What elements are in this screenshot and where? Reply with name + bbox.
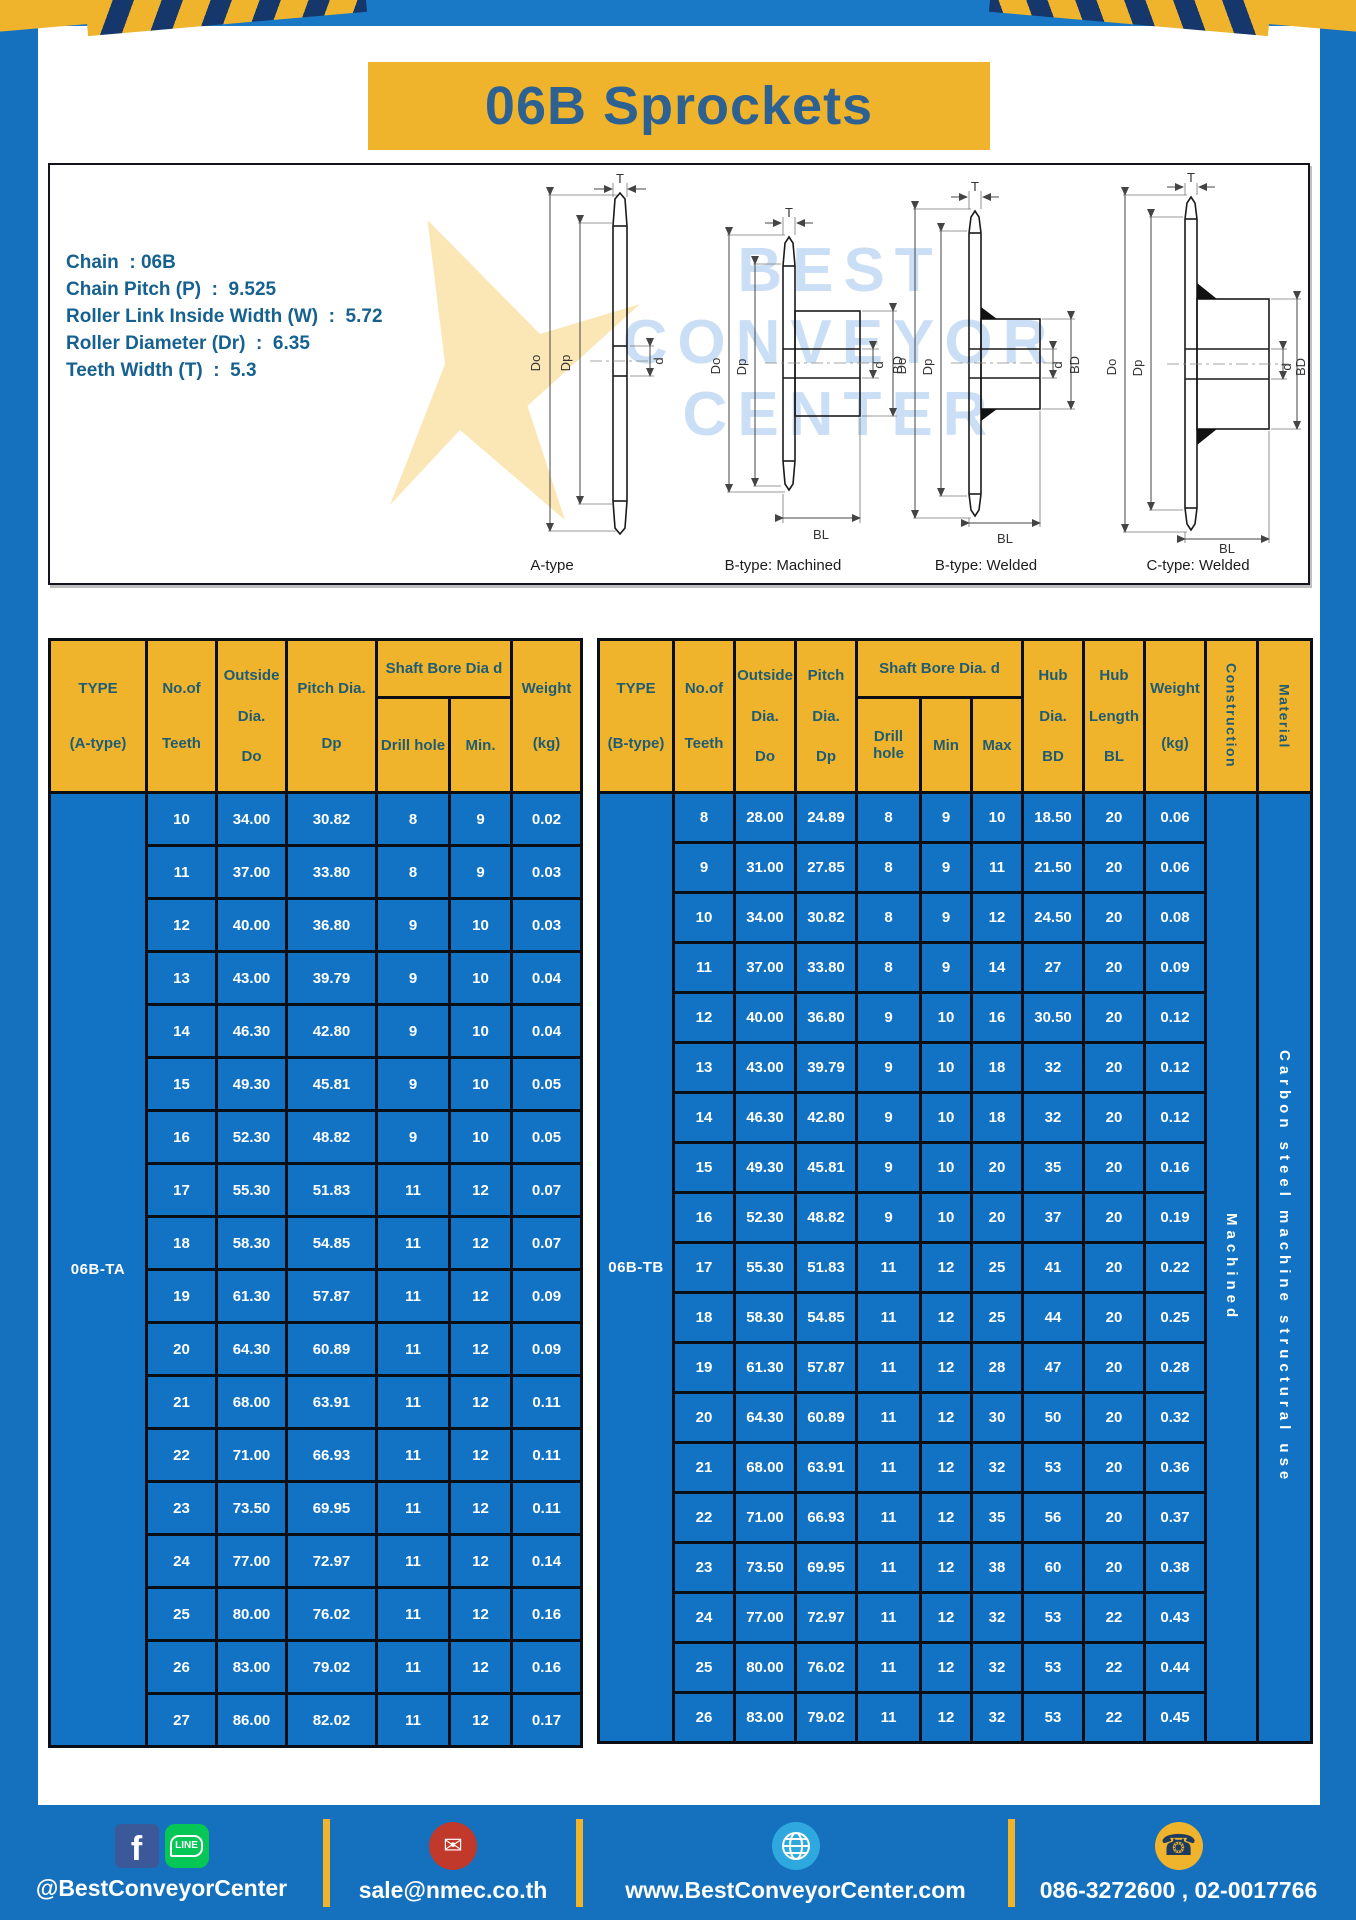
table-row: 1961.3057.8711122847200.28 [599, 1343, 1312, 1393]
footer-divider [323, 1819, 330, 1907]
table-cell: 9 [921, 843, 972, 893]
table-cell: 12 [921, 1393, 972, 1443]
table-row: 06B-TB828.0024.89891018.50200.06Machined… [599, 793, 1312, 843]
table-cell: 0.11 [512, 1429, 582, 1482]
table-row: 1652.3048.829102037200.19 [599, 1193, 1312, 1243]
table-cell: 54.85 [287, 1217, 377, 1270]
footer-email: ✉ sale@nmec.co.th [330, 1805, 576, 1920]
table-cell: 28 [972, 1343, 1023, 1393]
table-cell: 11 [147, 846, 217, 899]
table-cell: 20 [1084, 943, 1145, 993]
dim-label-bd: BD [1067, 356, 1080, 374]
table-cell: 61.30 [217, 1270, 287, 1323]
col-header-weight: Weight(kg) [1145, 640, 1206, 793]
table-cell: 80.00 [217, 1588, 287, 1641]
table-cell: 9 [857, 1043, 921, 1093]
table-cell: 36.80 [796, 993, 857, 1043]
table-cell: 33.80 [287, 846, 377, 899]
table-cell: 0.14 [512, 1535, 582, 1588]
spec-list: Chain : 06B Chain Pitch (P) : 9.525 Roll… [66, 249, 383, 384]
table-cell: 22 [1084, 1593, 1145, 1643]
table-cell: 8 [857, 793, 921, 843]
table-row: 1137.0033.80891427200.09 [599, 943, 1312, 993]
table-cell: 12 [921, 1293, 972, 1343]
table-cell: 9 [921, 793, 972, 843]
table-row: 2064.3060.8911123050200.32 [599, 1393, 1312, 1443]
globe-icon [772, 1822, 820, 1870]
table-cell: 12 [921, 1343, 972, 1393]
table-cell: 14 [147, 1005, 217, 1058]
table-cell: 24 [674, 1593, 735, 1643]
table-cell: 14 [674, 1093, 735, 1143]
footer-divider [1008, 1819, 1015, 1907]
table-cell: 12 [450, 1482, 512, 1535]
table-cell: 9 [377, 1111, 450, 1164]
col-header-pitch-dia: PitchDia.Dp [796, 640, 857, 793]
spec-chain-pitch: Chain Pitch (P) : 9.525 [66, 276, 383, 303]
table-cell: 12 [450, 1429, 512, 1482]
table-cell: 32 [972, 1593, 1023, 1643]
page-title-box: 06B Sprockets [368, 62, 990, 150]
table-cell: 10 [450, 952, 512, 1005]
type-label-cell: 06B-TA [50, 793, 147, 1747]
dim-label-d: d [1279, 363, 1294, 370]
table-b-type: TYPE(B-type) No.ofTeeth OutsideDia.Do Pi… [597, 638, 1313, 1744]
table-cell: 13 [674, 1043, 735, 1093]
table-cell: 25 [147, 1588, 217, 1641]
table-cell: 22 [1084, 1643, 1145, 1693]
table-cell: 33.80 [796, 943, 857, 993]
table-cell: 34.00 [735, 893, 796, 943]
table-cell: 0.04 [512, 1005, 582, 1058]
table-cell: 11 [377, 1641, 450, 1694]
table-cell: 25 [972, 1243, 1023, 1293]
table-cell: 0.04 [512, 952, 582, 1005]
table-cell: 11 [377, 1217, 450, 1270]
table-cell: 32 [1023, 1093, 1084, 1143]
table-cell: 0.03 [512, 899, 582, 952]
table-cell: 42.80 [287, 1005, 377, 1058]
table-cell: 23 [147, 1482, 217, 1535]
table-cell: 20 [147, 1323, 217, 1376]
table-cell: 0.07 [512, 1164, 582, 1217]
table-cell: 12 [921, 1243, 972, 1293]
table-cell: 9 [377, 899, 450, 952]
table-row: 1858.3054.8511122544200.25 [599, 1293, 1312, 1343]
table-cell: 20 [1084, 1343, 1145, 1393]
table-cell: 0.05 [512, 1111, 582, 1164]
table-cell: 60.89 [796, 1393, 857, 1443]
table-cell: 32 [972, 1443, 1023, 1493]
table-cell: 73.50 [217, 1482, 287, 1535]
table-cell: 73.50 [735, 1543, 796, 1593]
table-cell: 12 [450, 1217, 512, 1270]
col-header-hub-dia: HubDia.BD [1023, 640, 1084, 793]
table-cell: 11 [377, 1482, 450, 1535]
table-cell: 32 [1023, 1043, 1084, 1093]
table-cell: 0.08 [1145, 893, 1206, 943]
table-cell: 22 [674, 1493, 735, 1543]
spec-chain: Chain : 06B [66, 249, 383, 276]
dim-label-t: T [785, 205, 793, 220]
table-cell: 20 [1084, 1543, 1145, 1593]
table-cell: 12 [450, 1641, 512, 1694]
table-cell: 45.81 [796, 1143, 857, 1193]
table-cell: 0.16 [512, 1588, 582, 1641]
dim-label-bl: BL [1219, 541, 1235, 556]
table-cell: 20 [1084, 793, 1145, 843]
table-cell: 0.36 [1145, 1443, 1206, 1493]
table-cell: 63.91 [287, 1376, 377, 1429]
table-cell: 83.00 [735, 1693, 796, 1743]
table-cell: 50 [1023, 1393, 1084, 1443]
table-cell: 48.82 [287, 1111, 377, 1164]
table-cell: 40.00 [217, 899, 287, 952]
table-row: 1446.3042.809101832200.12 [599, 1093, 1312, 1143]
table-cell: 22 [147, 1429, 217, 1482]
line-icon: LINE [165, 1824, 209, 1868]
table-cell: 9 [377, 952, 450, 1005]
table-cell: 10 [450, 1058, 512, 1111]
table-cell: 17 [147, 1164, 217, 1217]
table-cell: 20 [1084, 1293, 1145, 1343]
table-cell: 55.30 [217, 1164, 287, 1217]
col-header-shaft-bore: Shaft Bore Dia. d [857, 640, 1023, 698]
table-cell: 37 [1023, 1193, 1084, 1243]
table-cell: 60.89 [287, 1323, 377, 1376]
table-cell: 20 [1084, 1143, 1145, 1193]
table-cell: 16 [147, 1111, 217, 1164]
table-row: 2683.0079.0211123253220.45 [599, 1693, 1312, 1743]
table-cell: 35 [972, 1493, 1023, 1543]
table-cell: 82.02 [287, 1694, 377, 1747]
table-cell: 9 [450, 793, 512, 846]
hazard-stripes [989, 0, 1271, 36]
table-cell: 20 [1084, 1243, 1145, 1293]
table-cell: 64.30 [217, 1323, 287, 1376]
table-cell: 11 [377, 1323, 450, 1376]
table-cell: 21 [674, 1443, 735, 1493]
table-cell: 57.87 [796, 1343, 857, 1393]
table-cell: 18 [972, 1043, 1023, 1093]
dim-label-t: T [1187, 171, 1195, 185]
table-cell: 0.16 [1145, 1143, 1206, 1193]
drawing-a-type: T Do Dp d [490, 171, 675, 556]
col-header-construction: Construction [1206, 640, 1258, 793]
table-cell: 69.95 [796, 1543, 857, 1593]
table-cell: 54.85 [796, 1293, 857, 1343]
table-row: 06B-TA1034.0030.82890.02 [50, 793, 582, 846]
table-cell: 11 [377, 1164, 450, 1217]
table-cell: 86.00 [217, 1694, 287, 1747]
table-cell: 25 [674, 1643, 735, 1693]
table-cell: 37.00 [735, 943, 796, 993]
table-cell: 63.91 [796, 1443, 857, 1493]
table-row: 2373.5069.9511123860200.38 [599, 1543, 1312, 1593]
table-cell: 24.50 [1023, 893, 1084, 943]
table-cell: 10 [921, 1143, 972, 1193]
col-header-outside-dia: OutsideDia.Do [735, 640, 796, 793]
table-cell: 8 [674, 793, 735, 843]
table-cell: 52.30 [217, 1111, 287, 1164]
table-cell: 8 [377, 846, 450, 899]
table-cell: 18.50 [1023, 793, 1084, 843]
table-cell: 20 [972, 1193, 1023, 1243]
table-cell: 66.93 [796, 1493, 857, 1543]
table-cell: 79.02 [287, 1641, 377, 1694]
table-cell: 11 [377, 1270, 450, 1323]
drawing-label-c-welded: C-type: Welded [1146, 557, 1249, 574]
table-cell: 49.30 [735, 1143, 796, 1193]
table-cell: 9 [921, 893, 972, 943]
table-cell: 0.32 [1145, 1393, 1206, 1443]
table-cell: 0.43 [1145, 1593, 1206, 1643]
table-cell: 18 [674, 1293, 735, 1343]
table-cell: 77.00 [217, 1535, 287, 1588]
table-cell: 12 [921, 1593, 972, 1643]
table-cell: 12 [147, 899, 217, 952]
table-cell: 20 [1084, 1043, 1145, 1093]
table-cell: 8 [857, 893, 921, 943]
table-cell: 39.79 [796, 1043, 857, 1093]
table-cell: 10 [450, 1005, 512, 1058]
table-cell: 9 [857, 993, 921, 1043]
table-cell: 0.12 [1145, 1043, 1206, 1093]
table-cell: 46.30 [217, 1005, 287, 1058]
table-cell: 0.38 [1145, 1543, 1206, 1593]
table-cell: 10 [450, 899, 512, 952]
table-cell: 21 [147, 1376, 217, 1429]
dim-label-bl: BL [813, 527, 829, 542]
table-cell: 36.80 [287, 899, 377, 952]
table-cell: 0.02 [512, 793, 582, 846]
table-cell: 83.00 [217, 1641, 287, 1694]
dim-label-bd: BD [1293, 358, 1308, 376]
table-cell: 76.02 [287, 1588, 377, 1641]
table-cell: 12 [972, 893, 1023, 943]
table-cell: 13 [147, 952, 217, 1005]
table-cell: 19 [674, 1343, 735, 1393]
table-cell: 58.30 [217, 1217, 287, 1270]
table-cell: 11 [857, 1443, 921, 1493]
table-row: 1755.3051.8311122541200.22 [599, 1243, 1312, 1293]
table-cell: 11 [857, 1593, 921, 1643]
table-cell: 15 [674, 1143, 735, 1193]
table-cell: 60 [1023, 1543, 1084, 1593]
table-cell: 11 [857, 1293, 921, 1343]
table-cell: 10 [921, 1093, 972, 1143]
table-cell: 0.09 [512, 1323, 582, 1376]
spec-teeth-width: Teeth Width (T) : 5.3 [66, 357, 383, 384]
dim-label-dp: Dp [558, 355, 573, 372]
table-cell: 12 [450, 1535, 512, 1588]
col-header-shaft-bore: Shaft Bore Dia d [377, 640, 512, 698]
dim-label-d: d [1050, 361, 1065, 368]
table-cell: 21.50 [1023, 843, 1084, 893]
table-cell: 0.12 [1145, 993, 1206, 1043]
table-cell: 57.87 [287, 1270, 377, 1323]
table-cell: 20 [1084, 1393, 1145, 1443]
table-cell: 16 [674, 1193, 735, 1243]
table-cell: 30.82 [287, 793, 377, 846]
facebook-icon: f [115, 1824, 159, 1868]
table-cell: 11 [857, 1643, 921, 1693]
table-cell: 24 [147, 1535, 217, 1588]
table-cell: 20 [1084, 1093, 1145, 1143]
table-cell: 39.79 [287, 952, 377, 1005]
dim-label-do: Do [1104, 359, 1119, 376]
table-cell: 12 [450, 1694, 512, 1747]
table-cell: 0.17 [512, 1694, 582, 1747]
table-cell: 18 [147, 1217, 217, 1270]
table-cell: 43.00 [735, 1043, 796, 1093]
table-cell: 11 [674, 943, 735, 993]
table-cell: 0.37 [1145, 1493, 1206, 1543]
table-row: 2477.0072.9711123253220.43 [599, 1593, 1312, 1643]
table-cell: 9 [377, 1005, 450, 1058]
table-cell: 42.80 [796, 1093, 857, 1143]
table-cell: 0.07 [512, 1217, 582, 1270]
footer-phone: ☎ 086-3272600 , 02-0017766 [1015, 1805, 1342, 1920]
table-cell: 11 [857, 1493, 921, 1543]
table-cell: 18 [972, 1093, 1023, 1143]
corner-stripes-right [986, 0, 1356, 56]
table-cell: 20 [1084, 1193, 1145, 1243]
table-cell: 11 [857, 1693, 921, 1743]
table-cell: 11 [857, 1343, 921, 1393]
dim-label-dp: Dp [734, 359, 749, 376]
table-cell: 12 [674, 993, 735, 1043]
table-cell: 23 [674, 1543, 735, 1593]
drawing-label-b-welded: B-type: Welded [935, 557, 1037, 574]
table-cell: 0.45 [1145, 1693, 1206, 1743]
table-cell: 27 [147, 1694, 217, 1747]
spec-roller-diameter: Roller Diameter (Dr) : 6.35 [66, 330, 383, 357]
table-cell: 31.00 [735, 843, 796, 893]
table-cell: 12 [450, 1588, 512, 1641]
col-header-teeth: No.ofTeeth [147, 640, 217, 793]
table-cell: 11 [857, 1393, 921, 1443]
table-cell: 12 [450, 1164, 512, 1217]
col-header-teeth: No.ofTeeth [674, 640, 735, 793]
table-cell: 27.85 [796, 843, 857, 893]
dim-label-bl: BL [997, 531, 1013, 546]
table-cell: 12 [921, 1643, 972, 1693]
col-header-max: Max [972, 698, 1023, 793]
email-address: sale@nmec.co.th [359, 1877, 548, 1904]
table-cell: 11 [972, 843, 1023, 893]
table-cell: 9 [674, 843, 735, 893]
table-cell: 48.82 [796, 1193, 857, 1243]
table-cell: 32 [972, 1643, 1023, 1693]
table-cell: 49.30 [217, 1058, 287, 1111]
table-row: 2271.0066.9311123556200.37 [599, 1493, 1312, 1543]
table-row: 2168.0063.9111123253200.36 [599, 1443, 1312, 1493]
table-cell: 22 [1084, 1693, 1145, 1743]
table-cell: 56 [1023, 1493, 1084, 1543]
table-cell: 28.00 [735, 793, 796, 843]
table-cell: 44 [1023, 1293, 1084, 1343]
col-header-type: TYPE(A-type) [50, 640, 147, 793]
dim-label-d: d [871, 361, 886, 368]
table-cell: 53 [1023, 1443, 1084, 1493]
table-cell: 10 [674, 893, 735, 943]
table-cell: 55.30 [735, 1243, 796, 1293]
table-cell: 30 [972, 1393, 1023, 1443]
table-cell: 12 [921, 1543, 972, 1593]
table-cell: 9 [450, 846, 512, 899]
table-cell: 24.89 [796, 793, 857, 843]
table-cell: 20 [674, 1393, 735, 1443]
table-cell: 8 [857, 943, 921, 993]
table-cell: 20 [1084, 993, 1145, 1043]
table-cell: 20 [1084, 893, 1145, 943]
table-cell: 0.06 [1145, 793, 1206, 843]
table-cell: 8 [857, 843, 921, 893]
table-cell: 11 [377, 1429, 450, 1482]
table-cell: 53 [1023, 1643, 1084, 1693]
table-cell: 11 [377, 1694, 450, 1747]
table-cell: 40.00 [735, 993, 796, 1043]
table-cell: 0.44 [1145, 1643, 1206, 1693]
table-cell: 20 [972, 1143, 1023, 1193]
table-cell: 47 [1023, 1343, 1084, 1393]
content-sheet: 06B Sprockets BEST CONVEYOR CENTER Chain… [38, 26, 1320, 1805]
table-cell: 0.28 [1145, 1343, 1206, 1393]
table-cell: 46.30 [735, 1093, 796, 1143]
table-cell: 9 [857, 1093, 921, 1143]
table-cell: 0.05 [512, 1058, 582, 1111]
dim-label-t: T [971, 179, 979, 194]
table-cell: 17 [674, 1243, 735, 1293]
table-cell: 53 [1023, 1693, 1084, 1743]
drawing-b-type-welded: T Do Dp d BD BL [885, 171, 1080, 556]
table-cell: 27 [1023, 943, 1084, 993]
table-cell: 11 [377, 1535, 450, 1588]
table-cell: 0.09 [1145, 943, 1206, 993]
table-cell: 38 [972, 1543, 1023, 1593]
table-cell: 0.03 [512, 846, 582, 899]
corner-stripes-left [0, 0, 370, 56]
table-cell: 71.00 [735, 1493, 796, 1543]
table-cell: 26 [674, 1693, 735, 1743]
table-cell: 16 [972, 993, 1023, 1043]
drawing-panel: BEST CONVEYOR CENTER Chain : 06B Chain P… [48, 163, 1310, 585]
table-cell: 76.02 [796, 1643, 857, 1693]
table-cell: 72.97 [796, 1593, 857, 1643]
table-cell: 10 [921, 1043, 972, 1093]
table-cell: 69.95 [287, 1482, 377, 1535]
table-cell: 25 [972, 1293, 1023, 1343]
table-cell: 9 [921, 943, 972, 993]
table-cell: 37.00 [217, 846, 287, 899]
social-handle: @BestConveyorCenter [36, 1875, 287, 1902]
col-header-material: Material [1258, 640, 1312, 793]
table-cell: 10 [921, 993, 972, 1043]
table-cell: 0.12 [1145, 1093, 1206, 1143]
table-cell: 61.30 [735, 1343, 796, 1393]
table-cell: 12 [450, 1323, 512, 1376]
table-row: 1549.3045.819102035200.16 [599, 1143, 1312, 1193]
table-cell: 15 [147, 1058, 217, 1111]
phone-numbers: 086-3272600 , 02-0017766 [1040, 1877, 1318, 1904]
type-label-cell: 06B-TB [599, 793, 674, 1743]
dim-label-do: Do [894, 358, 909, 375]
drawing-c-type-welded: T Do Dp d BD BL [1093, 171, 1308, 556]
vertical-text-cell: Machined [1206, 793, 1258, 1743]
drawing-label-a-type: A-type [530, 557, 573, 574]
table-cell: 68.00 [217, 1376, 287, 1429]
